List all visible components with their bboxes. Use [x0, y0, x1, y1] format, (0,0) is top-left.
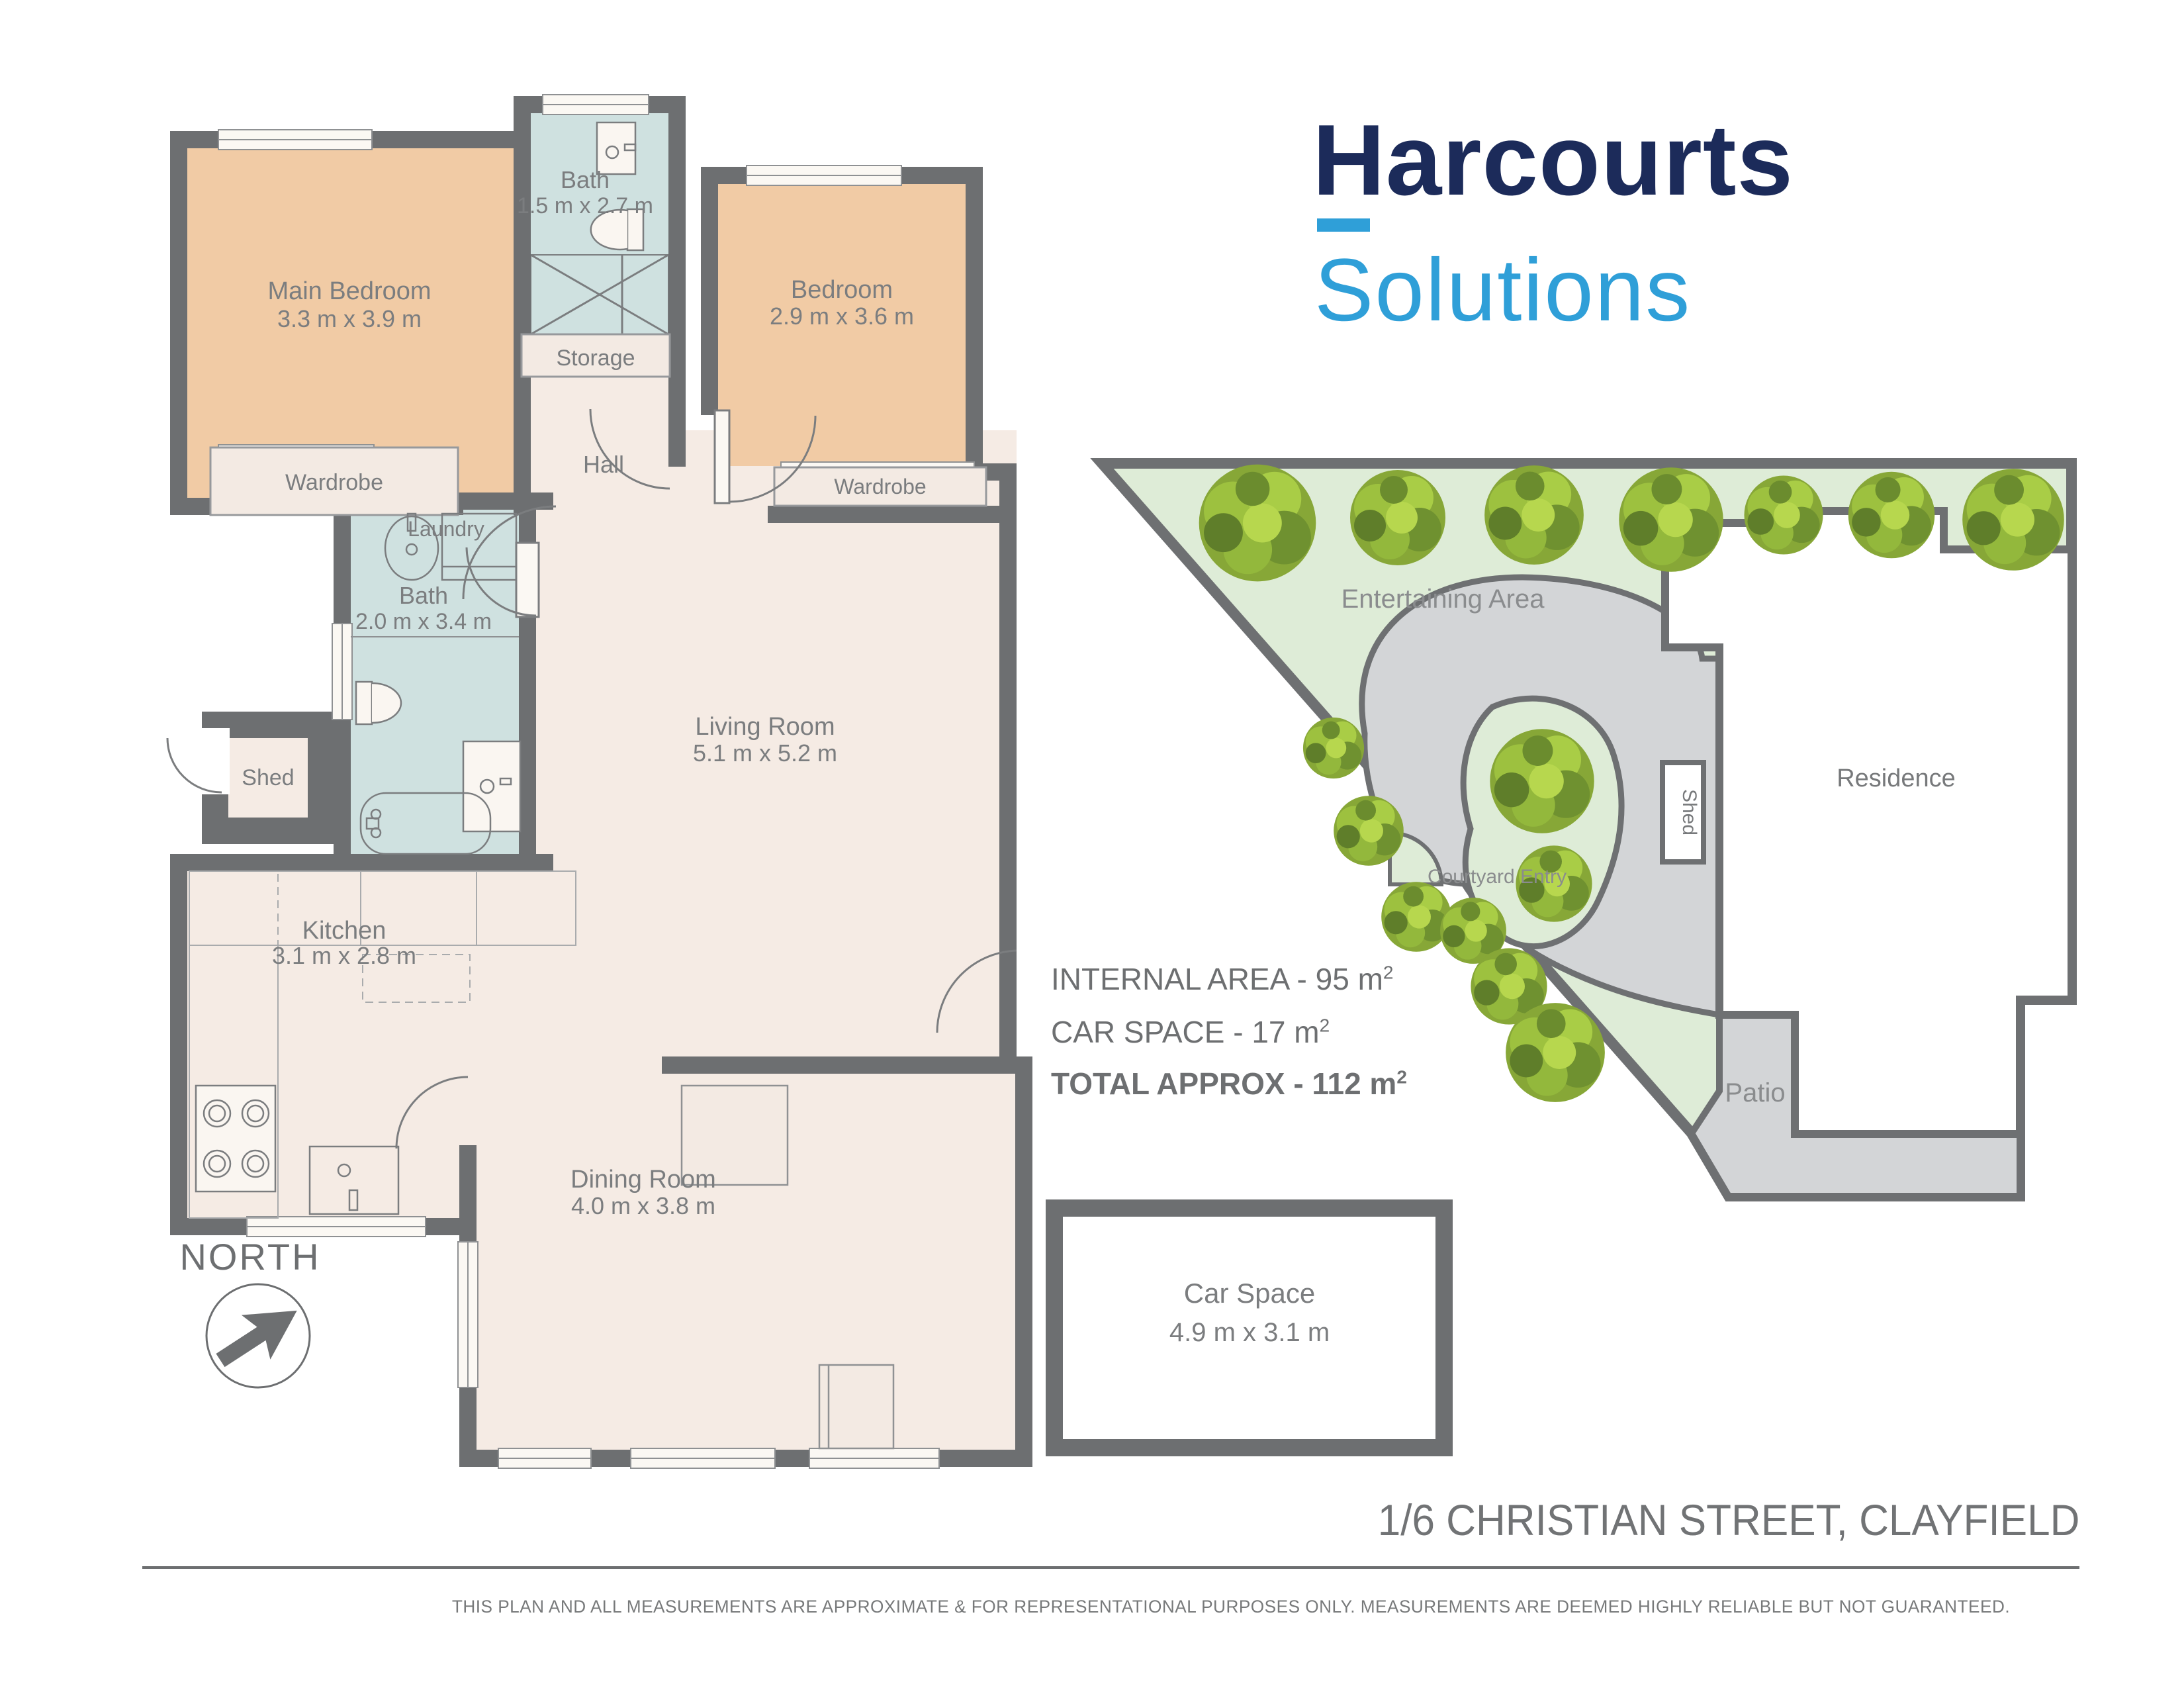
north-indicator: NORTH	[179, 1236, 320, 1387]
living-label: Living Room	[695, 713, 835, 741]
car-space-box: Car Space 4.9 m x 3.1 m	[1046, 1199, 1453, 1456]
laundry-label: Laundry	[408, 517, 484, 541]
shed-label: Shed	[242, 765, 294, 790]
kitchen-label: Kitchen	[302, 917, 387, 945]
wardrobe-left-label: Wardrobe	[285, 470, 383, 495]
entertaining-area-label: Entertaining Area	[1342, 585, 1545, 614]
main-bedroom-dims: 3.3 m x 3.9 m	[277, 305, 422, 332]
dining-label: Dining Room	[570, 1166, 716, 1194]
living-dims: 5.1 m x 5.2 m	[693, 739, 837, 767]
residence-label: Residence	[1837, 765, 1956, 792]
bath-top-dims: 1.5 m x 2.7 m	[517, 193, 653, 218]
car-space-dims: 4.9 m x 3.1 m	[1169, 1318, 1330, 1347]
plan-graphics: Main Bedroom 3.3 m x 3.9 m Bath 1.5 m x …	[0, 0, 2184, 1688]
car-space-line: CAR SPACE - 17 m2	[1051, 1014, 1330, 1050]
storage-label: Storage	[556, 346, 635, 371]
internal-area-sup: 2	[1383, 962, 1394, 983]
kitchen-dims: 3.1 m x 2.8 m	[272, 942, 416, 969]
bedroom-label: Bedroom	[791, 276, 893, 304]
car-space-sup: 2	[1320, 1015, 1330, 1036]
bath-main-dims: 2.0 m x 3.4 m	[355, 609, 492, 634]
dining-dims: 4.0 m x 3.8 m	[571, 1192, 715, 1219]
logo-product: Solutions	[1314, 246, 1691, 335]
patio-label: Patio	[1725, 1078, 1785, 1107]
floorplan-page: Main Bedroom 3.3 m x 3.9 m Bath 1.5 m x …	[0, 0, 2184, 1688]
footer-rule	[142, 1566, 2079, 1569]
total-area-sup: 2	[1396, 1067, 1407, 1088]
bedroom-dims: 2.9 m x 3.6 m	[770, 303, 914, 330]
bath-main-label: Bath	[399, 582, 448, 609]
disclaimer-text: THIS PLAN AND ALL MEASUREMENTS ARE APPRO…	[429, 1597, 2034, 1617]
bath-top-label: Bath	[561, 166, 610, 193]
car-space-label: Car Space	[1184, 1278, 1315, 1309]
logo-underline	[1317, 218, 1370, 232]
internal-area-line: INTERNAL AREA - 95 m2	[1051, 961, 1393, 997]
wardrobe-right-label: Wardrobe	[834, 475, 926, 498]
hall-label: Hall	[583, 451, 624, 478]
property-address: 1/6 CHRISTIAN STREET, CLAYFIELD	[1377, 1495, 2079, 1545]
courtyard-entry-label: Courtyard Entry	[1428, 866, 1567, 888]
main-bedroom-label: Main Bedroom	[267, 277, 431, 305]
total-area-line: TOTAL APPROX - 112 m2	[1051, 1066, 1407, 1102]
logo-brand: Harcourts	[1312, 110, 1794, 211]
site-shed-label: Shed	[1678, 789, 1700, 835]
north-label: NORTH	[179, 1236, 320, 1278]
